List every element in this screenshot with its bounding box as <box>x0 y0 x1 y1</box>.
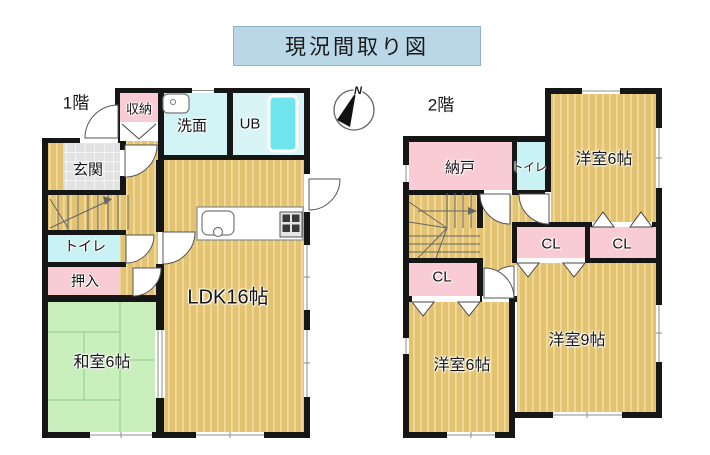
room-label-cl-right: CL <box>612 236 631 253</box>
room-label-ub: UB <box>240 116 261 133</box>
page-title: 現況間取り図 <box>233 26 481 66</box>
floor2-plan <box>403 88 662 438</box>
room-label-yoshitsu9: 洋室9帖 <box>549 326 606 350</box>
shuno-fold-door <box>120 122 158 141</box>
genkan-step-area <box>48 143 64 190</box>
room-label-toilet2: トイレ <box>512 159 547 175</box>
room-label-shuno: 収納 <box>126 99 152 118</box>
room-label-ldk: LDK16帖 <box>187 281 268 310</box>
room-label-yoshitsu6-upper: 洋室6帖 <box>576 145 633 169</box>
senmen-sink-icon <box>163 94 189 113</box>
floor2-label: 2階 <box>428 91 454 116</box>
front-door-arc <box>85 105 118 138</box>
room-label-cl-middle: CL <box>541 236 560 253</box>
stove-icon <box>280 212 302 237</box>
room-label-cl-left: CL <box>432 269 451 286</box>
floorplan-canvas: 現況間取り図 1階 2階 N 収納 洗面 UB 玄関 トイレ 押入 和室6帖 L… <box>0 0 710 455</box>
room-label-senmen: 洗面 <box>177 115 207 136</box>
compass-north-label: N <box>354 85 362 97</box>
floor1-plan <box>42 88 340 438</box>
washitsu-sliding-door <box>155 330 165 398</box>
floorplan-drawing <box>0 0 710 455</box>
kitchen-counter <box>197 207 303 240</box>
room-label-toilet1: トイレ <box>64 236 106 256</box>
bathtub-icon <box>269 96 297 151</box>
room-label-genkan: 玄関 <box>73 159 103 180</box>
stairs2-area <box>409 193 483 258</box>
ldk-exterior-door-arc <box>309 179 340 210</box>
room-label-yoshitsu6-lower: 洋室6帖 <box>434 351 491 375</box>
room-label-washitsu: 和室6帖 <box>74 348 131 372</box>
floor1-label: 1階 <box>63 89 89 114</box>
room-label-oshiire: 押入 <box>71 271 99 291</box>
room-label-nando: 納戸 <box>445 157 475 178</box>
